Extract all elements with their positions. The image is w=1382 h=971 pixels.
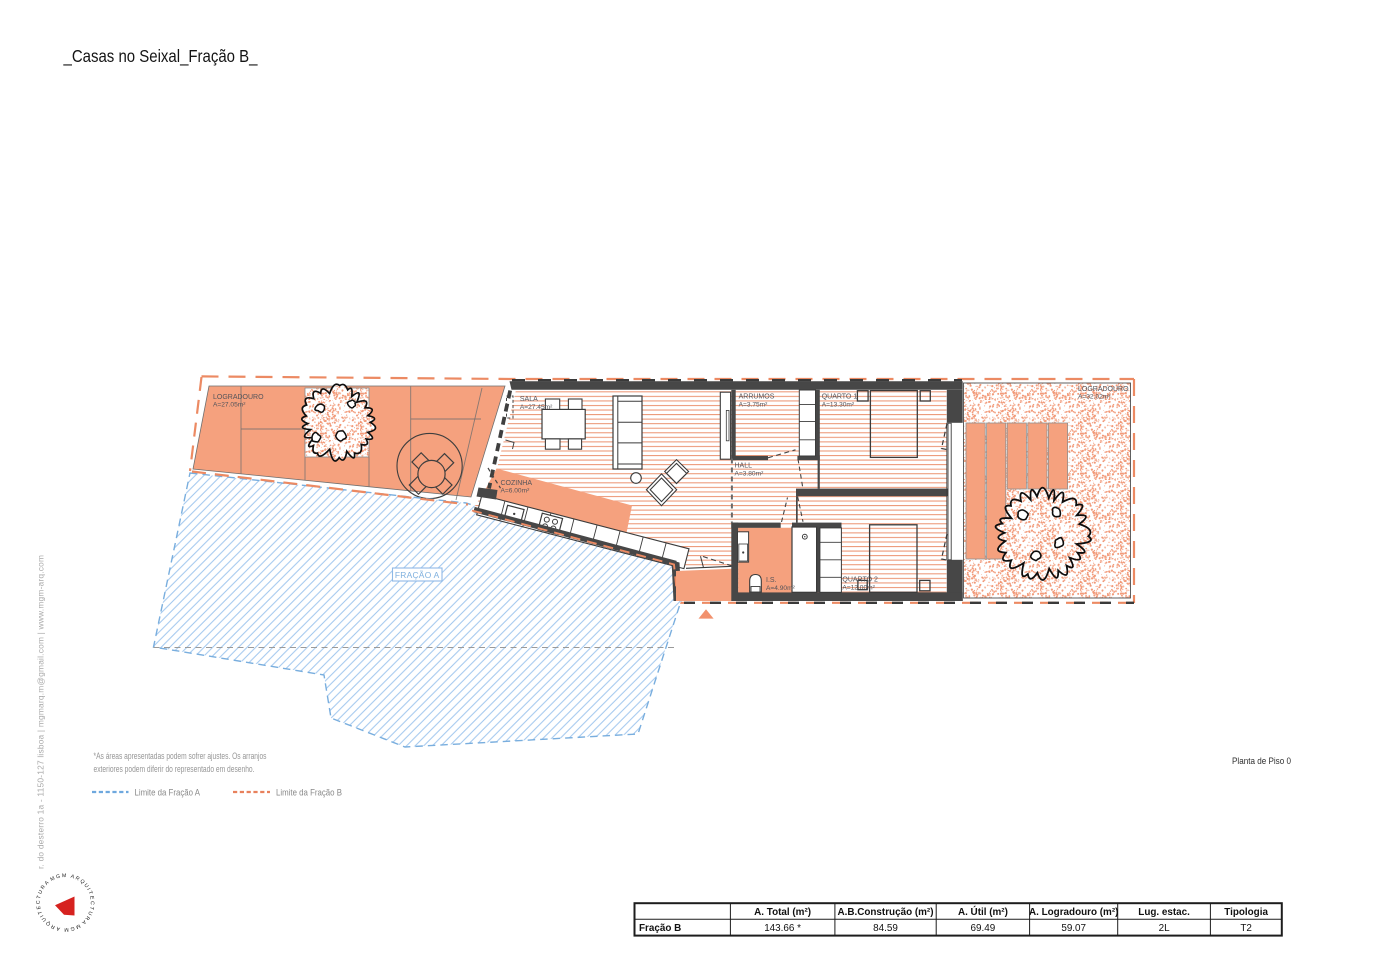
svg-text:r. do desterro 1a - 1150-127 l: r. do desterro 1a - 1150-127 lisboa | mg…: [36, 555, 46, 869]
svg-text:Limite da Fração B: Limite da Fração B: [276, 788, 342, 798]
svg-text:Lug. estac.: Lug. estac.: [1138, 907, 1190, 918]
svg-text:2L: 2L: [1159, 923, 1170, 934]
svg-text:A=27.45m²: A=27.45m²: [520, 404, 553, 411]
svg-text:A=3.75m²: A=3.75m²: [739, 401, 769, 408]
svg-text:FRAÇÃO A: FRAÇÃO A: [395, 570, 440, 580]
svg-text:I.S.: I.S.: [766, 577, 777, 584]
svg-text:A=3.80m²: A=3.80m²: [735, 470, 765, 477]
svg-text:Fração B: Fração B: [639, 923, 681, 934]
svg-text:T2: T2: [1240, 923, 1252, 934]
svg-text:69.49: 69.49: [971, 923, 996, 934]
svg-text:A. Útil (m²): A. Útil (m²): [958, 906, 1008, 918]
svg-text:COZINHA: COZINHA: [501, 480, 533, 487]
svg-text:_Casas no Seixal_Fração B_: _Casas no Seixal_Fração B_: [63, 46, 258, 67]
svg-text:LOGRADOURO: LOGRADOURO: [213, 394, 264, 401]
svg-text:A=4.90m²: A=4.90m²: [766, 585, 796, 592]
svg-text:HALL: HALL: [735, 463, 753, 470]
svg-text:A=27.05m²: A=27.05m²: [213, 402, 246, 409]
svg-text:A=12.00m²: A=12.00m²: [842, 585, 875, 592]
svg-text:A=6.00m²: A=6.00m²: [501, 487, 531, 494]
svg-text:Tipologia: Tipologia: [1224, 907, 1268, 918]
svg-text:SALA: SALA: [520, 396, 538, 403]
svg-text:84.59: 84.59: [873, 923, 898, 934]
svg-text:A=13.30m²: A=13.30m²: [822, 401, 855, 408]
svg-text:A.B.Construção (m²): A.B.Construção (m²): [837, 907, 933, 918]
svg-text:59.07: 59.07: [1061, 923, 1086, 934]
svg-text:A. Total (m²): A. Total (m²): [754, 907, 811, 918]
svg-text:LOGRADOURO: LOGRADOURO: [1078, 386, 1129, 393]
svg-text:QUARTO 1: QUARTO 1: [822, 394, 858, 401]
svg-text:exteriores podem diferir do re: exteriores podem diferir do representado…: [94, 764, 255, 774]
svg-text:QUARTO 2: QUARTO 2: [842, 577, 878, 584]
svg-text:143.66 *: 143.66 *: [764, 923, 801, 934]
svg-text:A. Logradouro (m²): A. Logradouro (m²): [1029, 907, 1118, 918]
svg-text:*As áreas apresentadas podem s: *As áreas apresentadas podem sofrer ajus…: [94, 751, 267, 761]
svg-text:Limite da Fração A: Limite da Fração A: [135, 788, 201, 798]
svg-text:ARRUMOS: ARRUMOS: [739, 394, 775, 401]
svg-text:Planta de Piso 0: Planta de Piso 0: [1232, 756, 1291, 766]
svg-text:A=32.02m²: A=32.02m²: [1078, 394, 1111, 401]
